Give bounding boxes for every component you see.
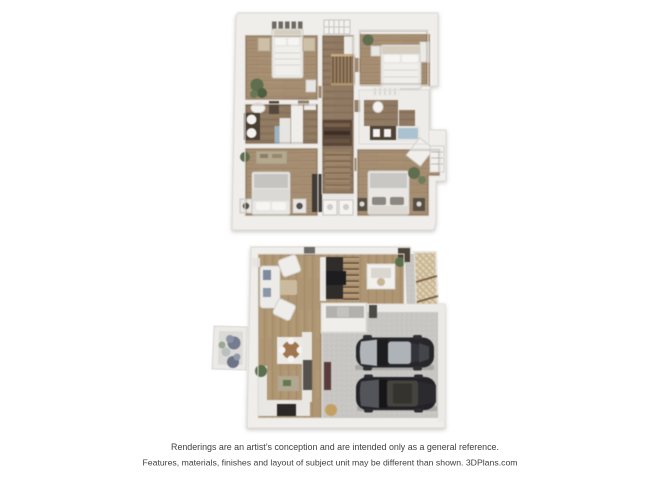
svg-text:Features, materials, finishes: Features, materials, finishes and layout… xyxy=(142,458,517,468)
svg-text:Renderings are an artist’s con: Renderings are an artist’s conception an… xyxy=(171,442,499,452)
